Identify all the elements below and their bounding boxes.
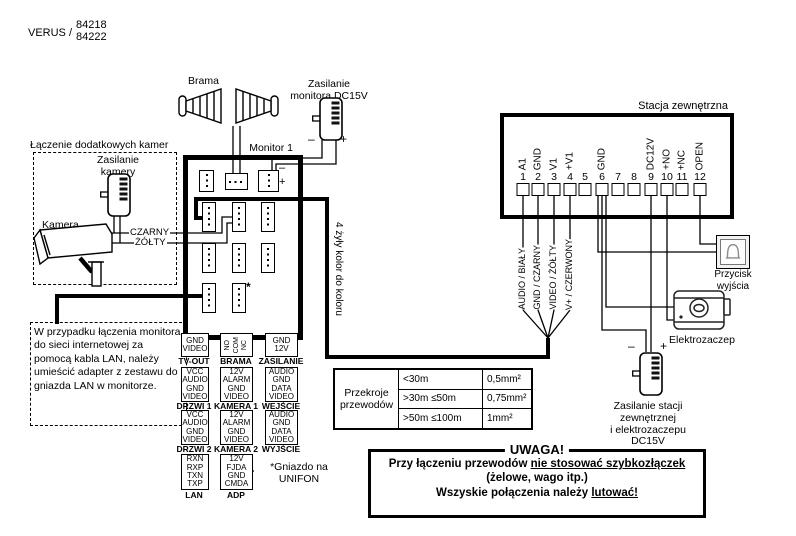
adp-asterisk: * [246,281,251,295]
terminal-label: +V1 [565,152,576,170]
terminal-screw [645,183,658,196]
bell-icon [722,241,744,263]
port-wejscie: AUDIO GND DATA VIDEO [265,367,298,402]
station-power-label-line2: zewnętrznej [598,413,698,425]
port-adp-label: ADP [213,490,259,500]
electric-strike-label: Elektrozaczep [664,334,740,346]
station-power-label-line4: DC15V [598,436,698,448]
warning-box: UWAGA! Przy łączeniu przewodów nie stoso… [368,449,706,518]
station-power-plug-icon [632,350,666,398]
terminal-screw [579,183,592,196]
monitor-connector-drzwi2 [202,243,216,273]
warning-line3: Wszyskie połączenia należy lutować! [371,486,703,500]
warning-line1: Przy łączeniu przewodów nie stosować szy… [371,457,703,471]
cable-wire-label-gnd: GND / CZARNY [532,245,545,310]
pin-label: VIDEO [183,345,208,353]
warning-line3-underlined: lutować! [591,487,638,499]
port-drzwi1: VCC AUDIO GND VIDEO [181,367,209,402]
terminal-screw [532,183,545,196]
table-value-cell: 0,5mm² [483,370,531,390]
port-kamera2: 12V ALARM GND VIDEO [220,410,253,445]
pin-label: VIDEO [224,393,249,401]
pin-label: CMDA [225,480,249,488]
pin-label: VIDEO [183,436,208,444]
pin-label: 12V [274,345,288,353]
warning-title: UWAGA! [505,442,569,458]
horn-right [236,89,278,123]
model-number-bottom: 84222 [76,32,107,44]
camera-section-title: Łączenie dodatkowych kamer [30,139,168,151]
port-zasilanie-label: ZASILANIE [258,356,304,366]
terminal-number: 12 [691,171,709,183]
unifon-note-line1: *Gniazdo na [254,461,344,473]
port-lan: RXN RXP TXN TXP [181,454,209,490]
port-tvout-label: TV-OUT [171,356,217,366]
terminal-screw [661,183,674,196]
monitor-connector-wejscie [261,202,275,232]
terminal-label: GND [597,148,608,170]
monitor-power-minus: – [308,133,315,147]
pin-label: TXP [187,480,203,488]
wiring-diagram: VERUS / 84218 84222 Brama Zasilanie moni… [0,0,796,536]
port-brama: NO COM NC [220,333,253,357]
cable-wire-label-vplus: V+ / CZERWONY [564,239,577,310]
port-lan-label: LAN [171,490,217,500]
warning-line3-text: Wszyskie połączenia należy [436,487,588,499]
port-drzwi2-label: DRZWI 2 [171,444,217,454]
unifon-note: *Gniazdo na UNIFON [254,461,344,485]
warning-line1-underlined: nie stosować szybkozłączek [531,458,686,470]
terminal-label: GND [533,148,544,170]
brand-text: VERUS / [28,20,72,43]
terminal-number: 5 [576,171,594,183]
camera-power-plug-icon [100,171,134,219]
table-header: Przekroje przewodów [335,370,399,428]
terminal-label: DC12V [646,138,657,170]
table-header-line1: Przekroje [344,387,388,399]
wire-label-yellow: ŻÓŁTY [134,237,167,248]
monitor-zasilanie-minus: – [279,162,285,175]
port-wyjscie-label: WYJŚCIE [258,444,304,454]
cctv-camera-icon [34,222,118,292]
monitor-zasilanie-plus: + [279,176,285,189]
port-zasilanie: GND 12V [265,333,298,357]
table-value-cell: 1mm² [483,409,531,428]
station-power-label: Zasilanie stacji zewnętrznej i elektroza… [598,401,698,448]
wire-gnd-to-power [602,196,646,352]
warning-line2: (żelowe, wago itp.) [371,471,703,485]
port-kamera1: 12V ALARM GND VIDEO [220,367,253,402]
cable-wire-label-video: VIDEO / ŻÓŁTY [548,245,561,310]
pin-label: COM [233,337,241,353]
pin-label: VIDEO [269,393,294,401]
station-power-label-line1: Zasilanie stacji [598,401,698,413]
unifon-note-line2: UNIFON [254,473,344,485]
exit-button-label-line1: Przycisk [702,269,764,281]
pin-label: VIDEO [183,393,208,401]
monitor-connector-kamera1 [232,202,246,232]
lan-note-box: W przypadku łączenia monitora do sieci i… [30,322,187,426]
monitor-connector-drzwi1 [202,202,216,232]
monitor-connector-kamera2 [232,243,246,273]
horn-left [179,89,221,123]
model-numbers: 84218 84222 [76,20,107,43]
terminal-label: V1 [549,158,560,170]
terminal-screw [517,183,530,196]
terminal-label: +NC [677,150,688,170]
monitor-connector-brama [225,173,248,190]
monitor-connector-wyjscie [261,243,275,273]
wire-gauge-table: Przekroje przewodów <30m 0,5mm² >30m ≤50… [333,368,533,430]
monitor-title: Monitor 1 [233,142,293,154]
wire-fan [523,310,570,338]
table-range-cell: <30m [399,370,483,390]
table-range-cell: >50m ≤100m [399,409,483,428]
terminal-label: A1 [518,158,529,170]
port-adp: 12V FJDA GND CMDA [220,454,253,490]
model-number-top: 84218 [76,20,107,32]
terminal-screw [694,183,707,196]
electric-strike-icon [672,288,734,334]
cable-lan [57,296,202,324]
port-drzwi2: VCC AUDIO GND VIDEO [181,410,209,445]
monitor-connector-lan [202,283,216,313]
terminal-screw [676,183,689,196]
port-kamera2-label: KAMERA 2 [213,444,259,454]
terminal-11: +NC 11 [673,120,691,196]
terminal-label: +NO [662,149,673,170]
terminal-screw [564,183,577,196]
monitor-connector-adp [232,283,246,313]
table-range-cell: >30m ≤50m [399,390,483,410]
monitor-power-label-line1: Zasilanie [285,78,373,90]
table-value-cell: 0,75mm² [483,390,531,410]
monitor-connector-aux [199,170,214,192]
terminal-screw [628,183,641,196]
port-tvout: GND VIDEO [181,333,209,357]
pin-label: VIDEO [224,436,249,444]
cable-note-vertical: 4 żyły kolor do koloru [333,222,344,316]
camera-power-label-line1: Zasilanie [87,154,149,166]
pin-label: NO [224,340,232,351]
terminal-label: OPEN [695,142,706,170]
port-brama-label: BRAMA [213,356,259,366]
terminal-screw [612,183,625,196]
terminal-screw [596,183,609,196]
terminal-number: 11 [673,171,691,183]
header: VERUS / 84218 84222 [28,20,107,43]
terminal-5: 5 [576,120,594,196]
monitor-power-plus: + [340,133,347,147]
monitor-connector-zasilanie [258,170,279,192]
station-title: Stacja zewnętrzna [498,100,728,113]
exit-button-inner [720,239,746,265]
cable-wire-label-audio: AUDIO / BIAŁY [517,248,530,310]
terminal-12: OPEN 12 [691,120,709,196]
terminal-number: 8 [625,171,643,183]
table-header-line2: przewodów [340,399,393,411]
terminal-screw [548,183,561,196]
terminal-8: 8 [625,120,643,196]
lan-note-text: W przypadku łączenia monitora do sieci i… [34,326,180,392]
port-wyjscie: AUDIO GND DATA VIDEO [265,410,298,445]
pin-label: VIDEO [269,436,294,444]
pin-label: NC [241,340,249,350]
exit-button-icon [716,235,750,269]
warning-line1-text: Przy łączeniu przewodów [389,458,528,470]
gate-horns-icon [176,84,280,128]
